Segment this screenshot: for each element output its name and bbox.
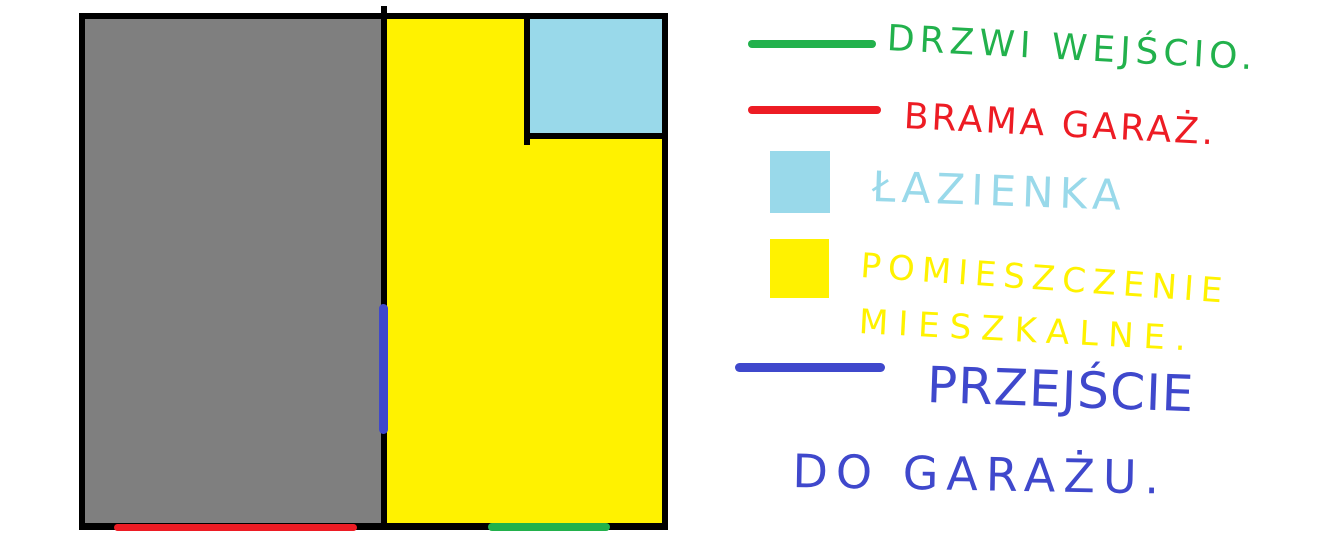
legend-label-garage-gate: BRAMA GARAŻ. [903, 96, 1218, 153]
legend-label-entrance-door: DRZWI WEJŚCIO. [886, 18, 1259, 78]
garage-passage-marker [379, 304, 388, 434]
garage-passage-swatch-line [735, 363, 885, 372]
living-space-swatch-square [770, 239, 829, 298]
legend-label-garage-passage-line1: PRZEJŚCIE [926, 356, 1195, 423]
entrance-door-swatch-line [748, 40, 876, 48]
legend-label-bathroom: ŁAZIENKA [871, 162, 1128, 220]
bathroom-wall-tick [524, 139, 530, 145]
garage-room [79, 13, 387, 530]
divider-wall-tick [381, 6, 387, 14]
legend-label-living-space-line2: MIESZKALNE. [858, 302, 1197, 360]
garage-gate-marker [114, 524, 357, 531]
legend-label-living-space-line1: POMIESZCZENIE [859, 246, 1230, 312]
garage-gate-swatch-line [748, 106, 881, 114]
bathroom-room [524, 13, 668, 139]
bathroom-swatch-square [770, 151, 830, 213]
paint-drawing: DRZWI WEJŚCIO. BRAMA GARAŻ. ŁAZIENKA POM… [0, 0, 1343, 542]
legend-label-garage-passage-line2: DO GARAŻU. [792, 444, 1168, 505]
entrance-door-marker [488, 523, 610, 531]
